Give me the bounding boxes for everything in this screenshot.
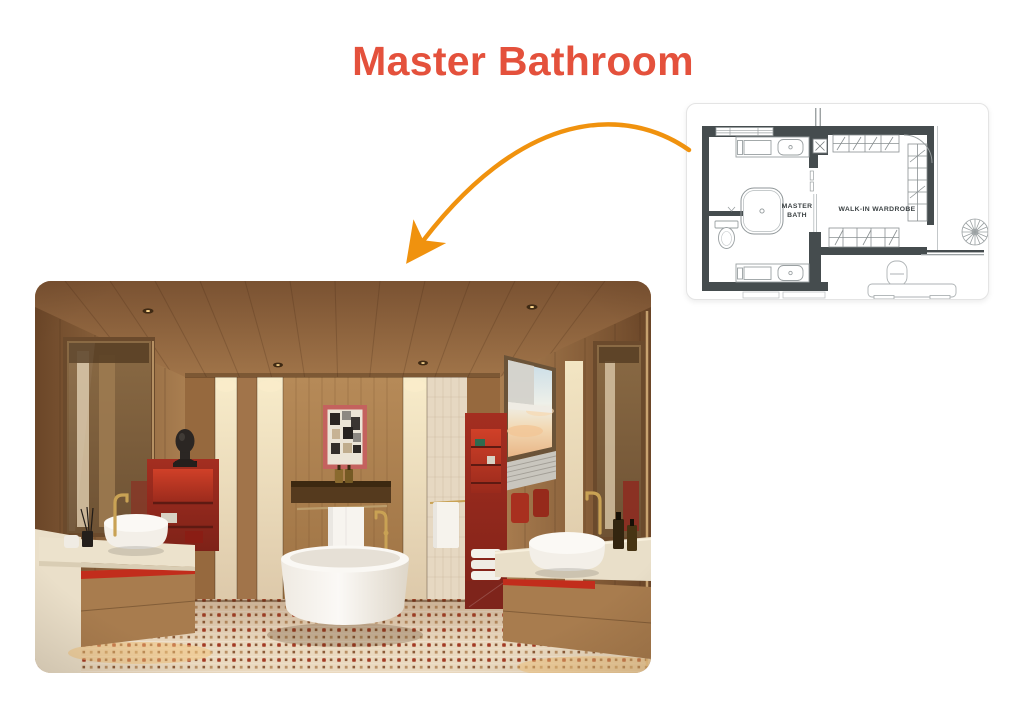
- pipe-symbol: [816, 108, 820, 126]
- floorplan-drawing: MASTER BATH WALK-IN WARDROBE: [687, 104, 988, 299]
- shower-square-symbol: [813, 139, 827, 153]
- vanity-sink-top-symbol: [736, 137, 809, 157]
- bathroom-render: [35, 281, 651, 673]
- console-furniture-symbol: [868, 261, 956, 299]
- wardrobe-rail-top: [833, 135, 899, 152]
- floorplan-card: MASTER BATH WALK-IN WARDROBE: [686, 103, 989, 300]
- vanity-sink-bottom-symbol: [736, 264, 809, 282]
- room-label-master-bath-line1: MASTER: [782, 203, 813, 210]
- divider-door: [810, 171, 816, 232]
- photo-card: [35, 281, 651, 673]
- clipped-furniture: [743, 292, 825, 298]
- vignette: [35, 281, 651, 673]
- spiral-staircase-symbol: [962, 219, 988, 245]
- wardrobe-rail-bottom: [829, 228, 899, 247]
- room-label-walk-in-wardrobe: WALK-IN WARDROBE: [839, 206, 916, 213]
- room-label-master-bath-line2: BATH: [787, 212, 807, 219]
- window-symbol: [716, 128, 773, 136]
- bathtub-symbol: [741, 188, 783, 234]
- page-title: Master Bathroom: [352, 38, 694, 85]
